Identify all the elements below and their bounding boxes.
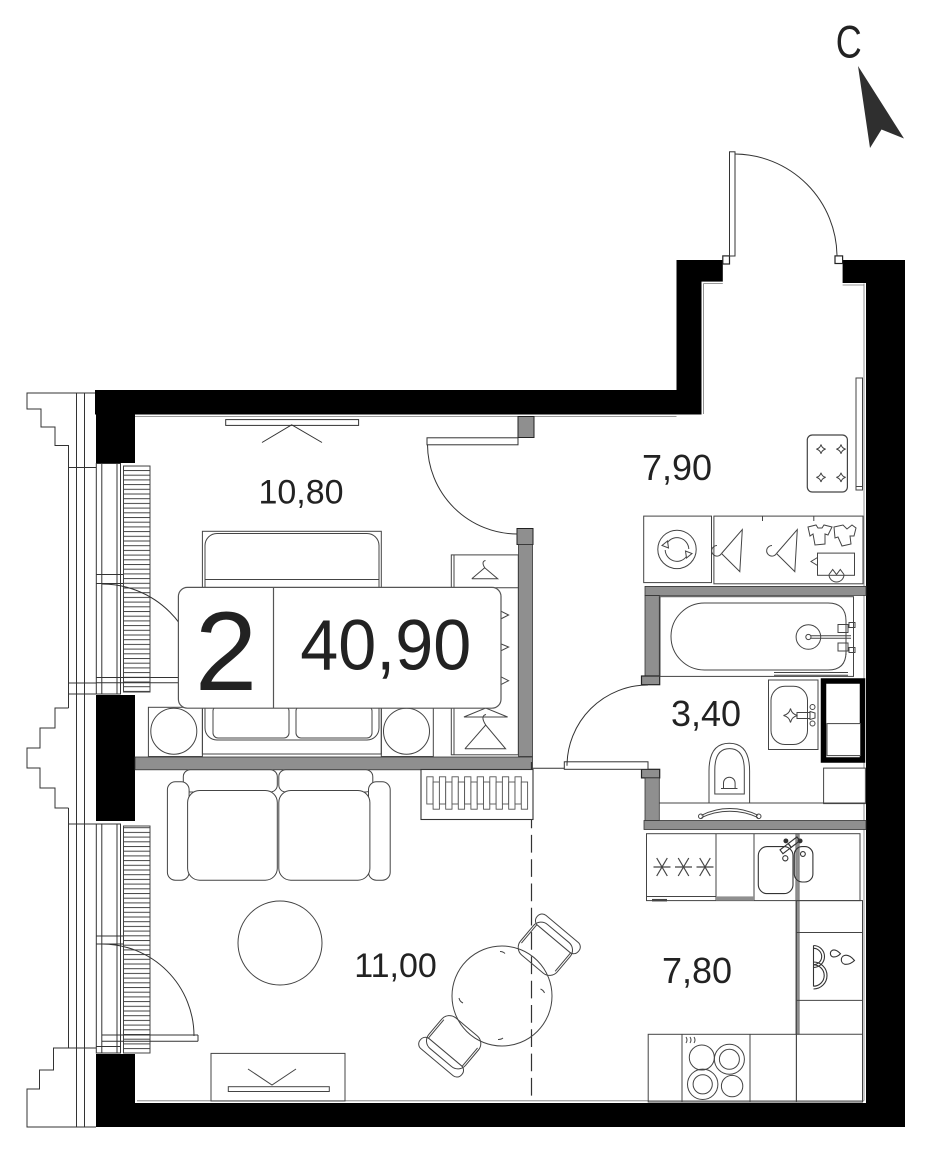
svg-text:2: 2 [195, 589, 257, 714]
svg-text:40,90: 40,90 [300, 607, 471, 686]
svg-text:7,80: 7,80 [662, 950, 732, 991]
svg-text:С: С [836, 17, 862, 68]
svg-text:11,00: 11,00 [354, 947, 437, 985]
svg-text:7,90: 7,90 [642, 447, 712, 488]
svg-text:10,80: 10,80 [258, 474, 343, 512]
svg-text:3,40: 3,40 [671, 693, 741, 734]
